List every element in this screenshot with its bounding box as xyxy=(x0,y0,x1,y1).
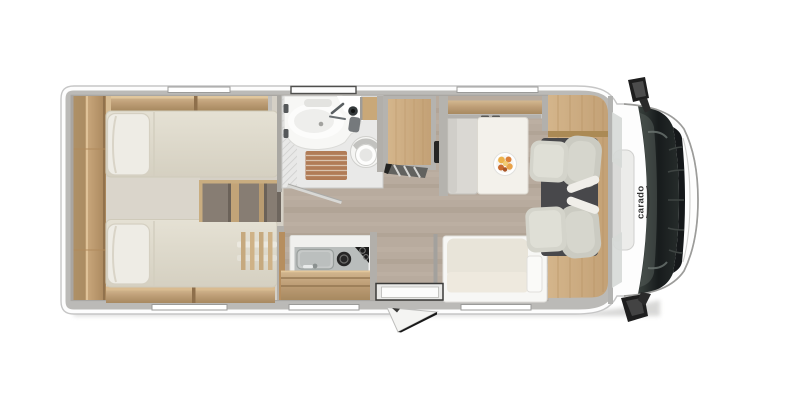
svg-text:carado: carado xyxy=(636,185,647,219)
